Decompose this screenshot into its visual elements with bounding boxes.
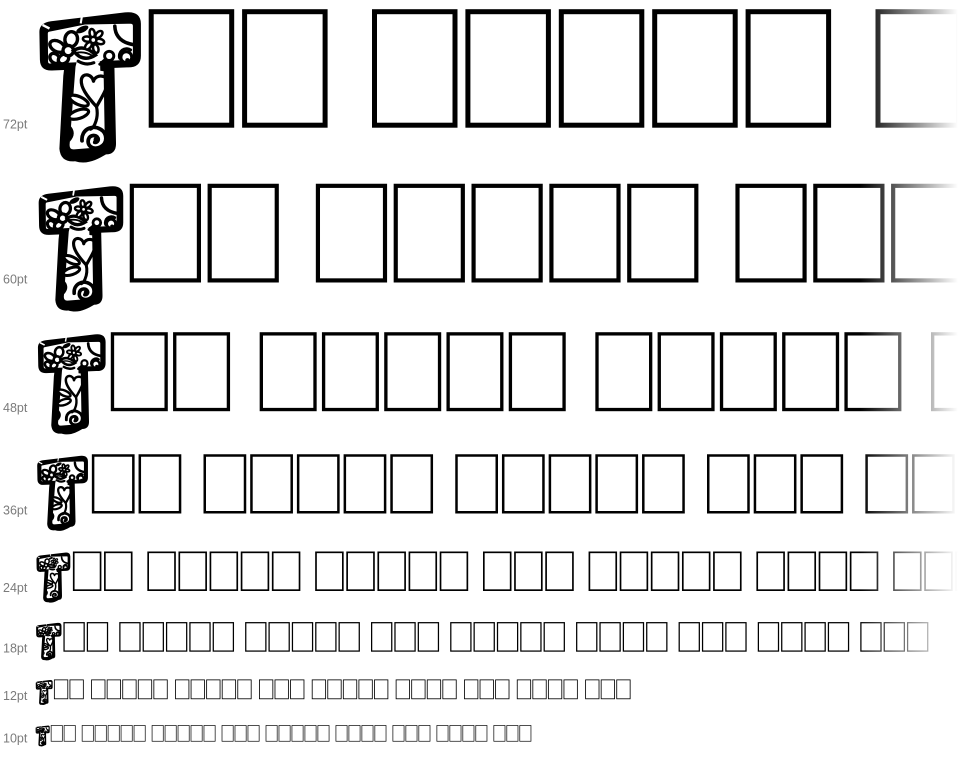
svg-text:36pt: 36pt [3,504,28,518]
svg-text:10pt: 10pt [3,732,28,746]
svg-text:48pt: 48pt [3,401,28,415]
svg-text:60pt: 60pt [3,273,28,287]
svg-text:12pt: 12pt [3,689,28,703]
svg-text:24pt: 24pt [3,581,28,595]
svg-text:72pt: 72pt [3,118,28,132]
svg-text:18pt: 18pt [3,642,28,656]
